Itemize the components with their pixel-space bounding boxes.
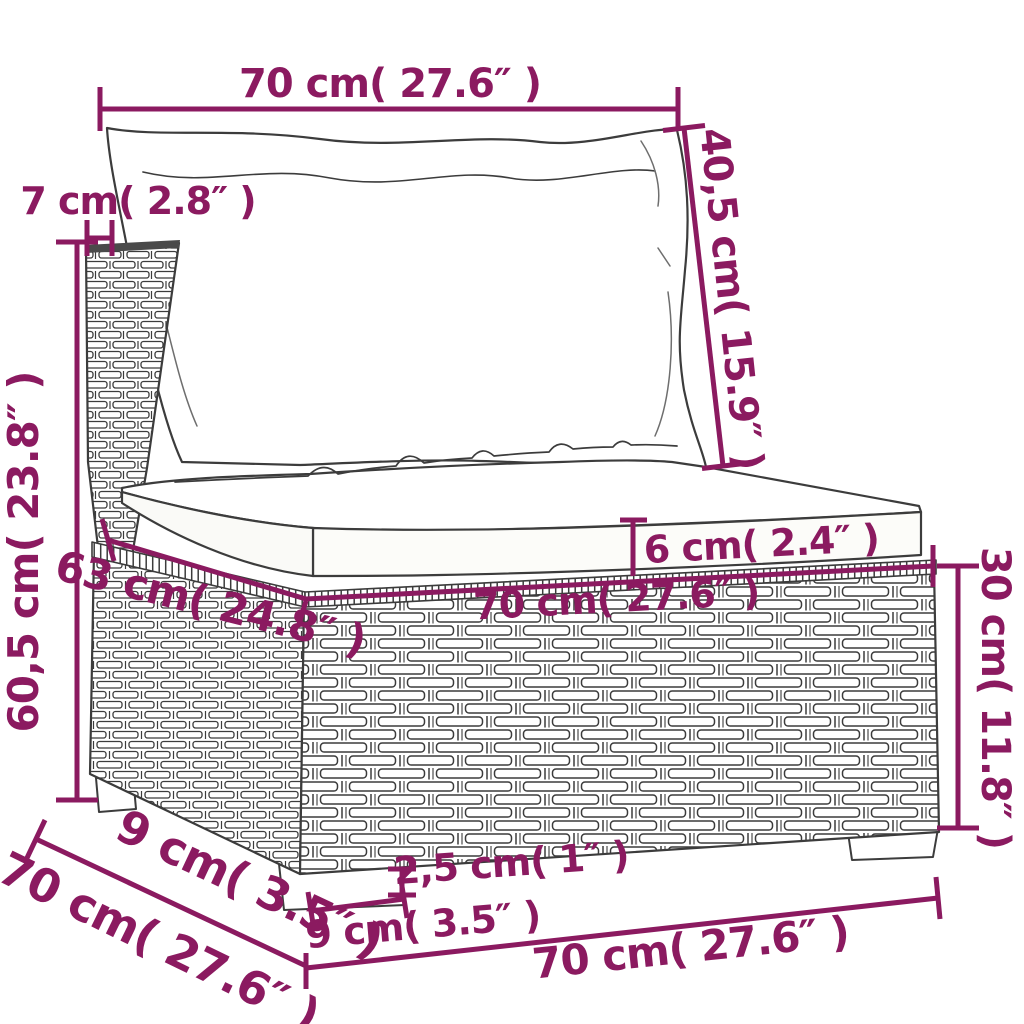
sofa-dimension-drawing: 70 cm( 27.6″ ) 40,5 cm( 15.9″ ) 7 cm( 2.…: [0, 0, 1024, 1024]
tick: [936, 877, 940, 919]
dim-label-base-width: 70 cm( 27.6″ ): [530, 907, 851, 989]
dim-label-total-height: 60,5 cm( 23.8″ ): [0, 372, 48, 733]
dimension-diagram: 70 cm( 27.6″ ) 40,5 cm( 15.9″ ) 7 cm( 2.…: [0, 0, 1024, 1024]
dim-label-back-panel-thickness: 7 cm( 2.8″ ): [20, 179, 255, 223]
dim-label-cushion-width-top: 70 cm( 27.6″ ): [239, 61, 541, 107]
dim-label-base-height: 30 cm( 11.8″ ): [972, 547, 1018, 849]
